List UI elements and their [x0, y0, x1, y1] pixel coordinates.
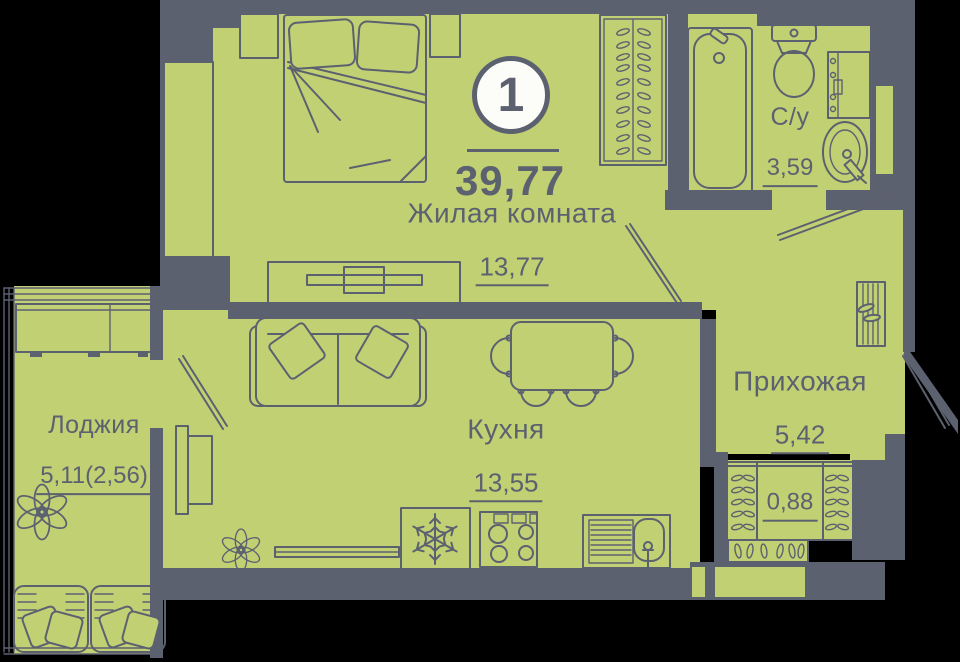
entry-platform-small [692, 567, 705, 597]
room-name: Кухня [467, 413, 544, 445]
room-name: Лоджия [36, 411, 152, 440]
sofa-icon [250, 318, 426, 406]
room-name: Жилая комната [408, 197, 617, 229]
label-kitchen: Кухня 13,55 [467, 413, 544, 502]
total-area-divider [467, 149, 559, 152]
room-area: 0,88 [763, 489, 818, 522]
room-name: С/у [763, 103, 818, 132]
floor-plan: 1 39,77 Жилая комната 13,77 Кухня 13,55 … [0, 0, 960, 662]
label-bathroom: С/у 3,59 [763, 103, 818, 187]
wall-niche [876, 86, 893, 174]
label-loggia: Лоджия 5,11(2,56) [36, 411, 152, 495]
label-living-room: Жилая комната 13,77 [408, 197, 617, 286]
entry-platform [715, 567, 805, 597]
room-area: 5,42 [771, 420, 830, 455]
label-hallway: Прихожая 5,42 [733, 365, 867, 454]
room-area: 13,55 [469, 468, 542, 503]
label-closet: 0,88 [763, 485, 818, 522]
room-count: 1 [498, 68, 525, 123]
room-area: 5,11(2,56) [36, 462, 152, 495]
room-area: 13,77 [475, 252, 548, 287]
room-count-badge: 1 [472, 56, 550, 134]
room-name: Прихожая [733, 365, 867, 397]
room-area: 3,59 [763, 154, 818, 187]
